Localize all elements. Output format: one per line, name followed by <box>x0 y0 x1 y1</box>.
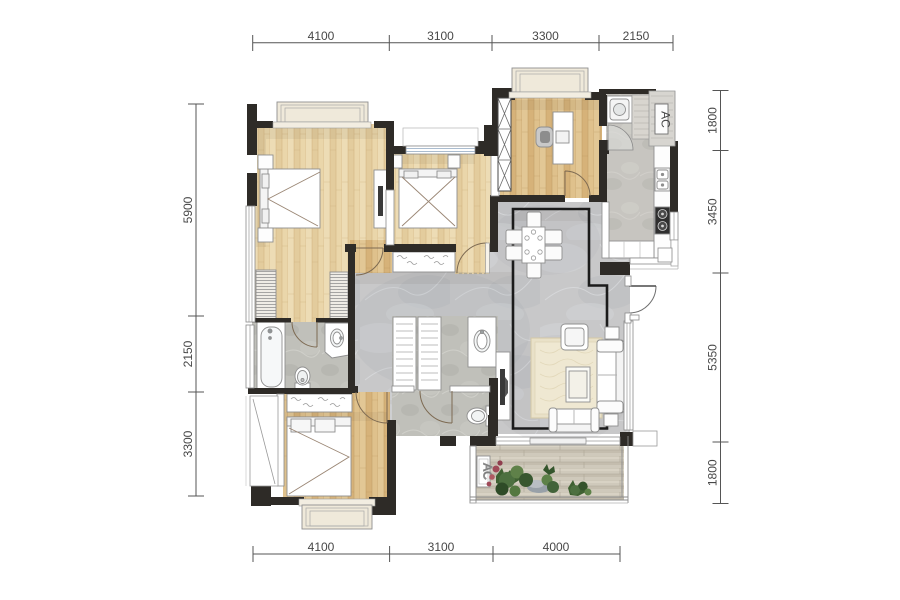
svg-text:1800: 1800 <box>706 107 720 134</box>
svg-text:2150: 2150 <box>181 340 195 367</box>
svg-text:3300: 3300 <box>532 29 559 43</box>
svg-text:4100: 4100 <box>308 540 335 554</box>
svg-text:3450: 3450 <box>706 198 720 225</box>
svg-text:5350: 5350 <box>706 344 720 371</box>
svg-text:3300: 3300 <box>181 430 195 457</box>
svg-text:1800: 1800 <box>706 459 720 486</box>
svg-text:3100: 3100 <box>427 29 454 43</box>
svg-text:4100: 4100 <box>308 29 335 43</box>
svg-text:3100: 3100 <box>428 540 455 554</box>
svg-text:2150: 2150 <box>623 29 650 43</box>
svg-text:AC: AC <box>659 111 673 128</box>
svg-text:4000: 4000 <box>543 540 570 554</box>
svg-text:5900: 5900 <box>181 196 195 223</box>
